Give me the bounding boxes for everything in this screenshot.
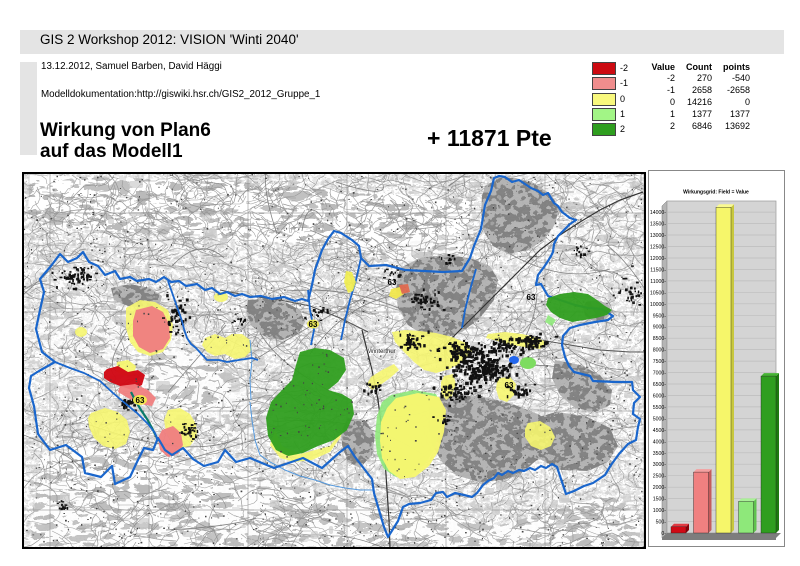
svg-text:6500-: 6500- [653,382,667,388]
svg-text:1500-: 1500- [653,497,667,503]
svg-text:11500-: 11500- [650,267,666,273]
svg-text:9500-: 9500- [653,313,667,319]
svg-text:2500-: 2500- [653,474,667,480]
svg-text:63: 63 [388,278,397,287]
svg-text:63: 63 [505,381,514,390]
svg-text:9000-: 9000- [653,325,667,331]
svg-text:7500-: 7500- [653,359,667,365]
svg-text:5000-: 5000- [653,416,667,422]
svg-text:10000-: 10000- [650,302,666,308]
svg-text:14000-: 14000- [650,210,666,216]
svg-text:1000-: 1000- [653,508,667,514]
svg-text:63: 63 [527,293,536,302]
svg-text:Wirkungsgrid: Field = Value: Wirkungsgrid: Field = Value [683,190,749,196]
svg-text:13000-: 13000- [650,233,666,239]
svg-text:5500-: 5500- [653,405,667,411]
svg-text:12500-: 12500- [650,245,666,251]
svg-text:8000-: 8000- [653,348,667,354]
svg-text:4500-: 4500- [653,428,667,434]
svg-text:63: 63 [309,320,318,329]
svg-text:6000-: 6000- [653,394,667,400]
svg-text:Winterthur: Winterthur [368,349,396,355]
svg-text:3000-: 3000- [653,462,667,468]
svg-text:500-: 500- [656,520,667,526]
svg-text:13500-: 13500- [650,222,666,228]
svg-text:2000-: 2000- [653,485,667,491]
svg-text:63: 63 [136,396,145,405]
svg-text:3500-: 3500- [653,451,667,457]
svg-text:11000-: 11000- [650,279,666,285]
svg-text:4000-: 4000- [653,439,667,445]
svg-text:7000-: 7000- [653,371,667,377]
svg-text:10500-: 10500- [650,290,666,296]
svg-text:8500-: 8500- [653,336,667,342]
svg-text:12000-: 12000- [650,256,666,262]
